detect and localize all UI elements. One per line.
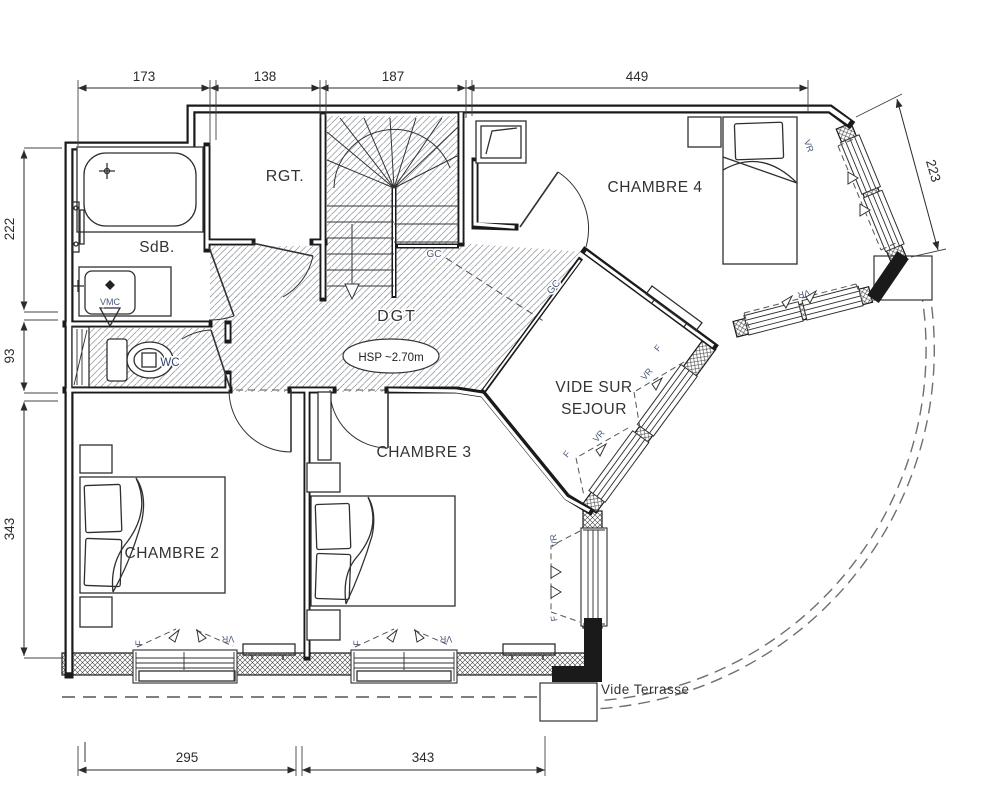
door-chambre4-arc	[558, 172, 589, 247]
nightstand	[307, 463, 340, 492]
dim-right-1: 223	[923, 158, 944, 184]
room-label-dgt: DGT	[377, 308, 417, 325]
room-label-sdb: SdB.	[139, 239, 175, 256]
vr-label-w3: VR	[548, 533, 560, 548]
door-chambre3-arc	[330, 390, 388, 448]
bathtub	[77, 147, 203, 232]
f-label-w3: F	[549, 614, 560, 622]
f-label-w4: F	[561, 448, 573, 459]
vmc-label: VMC	[100, 297, 121, 307]
dim-top-3: 187	[382, 69, 405, 84]
vr-label-w5: VR	[639, 366, 655, 382]
room-label-vide-sejour-2: SEJOUR	[561, 401, 627, 418]
room-label-chambre3: CHAMBRE 3	[377, 444, 472, 461]
hsp-annotation: HSP ~2.70m	[343, 339, 439, 373]
nightstand	[80, 597, 112, 627]
wall-band-chambre4-right	[835, 122, 909, 265]
f-label-w1: F	[134, 640, 144, 646]
room-label-vide-terrasse: Vide Terrasse	[601, 682, 690, 697]
dim-bottom-2: 343	[412, 750, 435, 765]
bed-chambre2	[80, 445, 225, 627]
vr-label-w7: VR	[796, 288, 811, 301]
duct-box	[476, 121, 526, 163]
terrace-step-bottom	[540, 683, 597, 721]
vr-label-w6: VR	[802, 138, 816, 154]
f-label-w5: F	[652, 342, 664, 353]
vmc-unit: VMC	[72, 267, 171, 326]
dim-left-1: 222	[2, 218, 17, 241]
door-chambre4-leaf	[520, 172, 558, 227]
floor-plan-page: VMC	[0, 0, 994, 800]
bed-chambre3	[307, 463, 455, 640]
labels: SdB. RGT. CHAMBRE 4 DGT VIDE SUR SEJOUR …	[125, 138, 816, 697]
dim-left-2: 93	[2, 348, 17, 363]
dim-top-4: 449	[626, 69, 649, 84]
floor-plan-canvas: VMC	[0, 0, 994, 800]
window-chambre3	[351, 650, 457, 683]
dim-top-2: 138	[254, 69, 277, 84]
room-label-chambre4: CHAMBRE 4	[608, 179, 703, 196]
gc-label-stairs: GC	[427, 249, 442, 260]
nightstand	[307, 610, 340, 640]
side-table	[688, 117, 721, 147]
window-chambre3-right	[581, 528, 607, 626]
door-chambre2-arc	[229, 390, 291, 452]
nightstand	[80, 445, 112, 473]
terrace-arc-inner	[593, 290, 926, 701]
vr-label-w1: VR	[221, 634, 234, 644]
corner-bottom-right	[552, 618, 602, 682]
f-label-w2: F	[352, 640, 362, 646]
vr-label-w2: VR	[439, 634, 452, 644]
dim-top-1: 173	[133, 69, 156, 84]
wall-band-right	[581, 511, 607, 628]
room-label-rgt: RGT.	[266, 168, 304, 185]
dim-bottom-1: 295	[176, 750, 199, 765]
room-label-vide-sejour-1: VIDE SUR	[555, 379, 632, 396]
bed-chambre4	[688, 117, 797, 264]
room-label-chambre2: CHAMBRE 2	[125, 545, 220, 562]
dim-left-3: 343	[2, 518, 17, 541]
wall-stub	[318, 392, 331, 460]
window-wc	[72, 327, 89, 387]
hsp-text: HSP ~2.70m	[358, 352, 423, 364]
terrace-arc-outer	[594, 288, 934, 709]
room-label-wc: WC	[160, 357, 179, 369]
vr-label-w4: VR	[591, 428, 607, 444]
window-chambre2	[133, 650, 237, 683]
wall-band-void	[581, 338, 717, 514]
